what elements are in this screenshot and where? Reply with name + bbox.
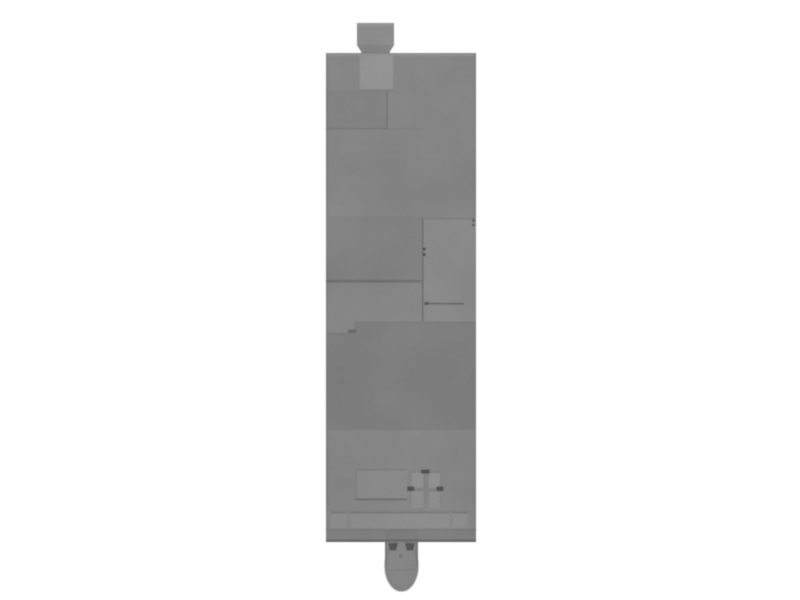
texture-grain [310, 10, 490, 600]
texture-overlay [310, 10, 490, 600]
photo-canvas [0, 0, 800, 600]
